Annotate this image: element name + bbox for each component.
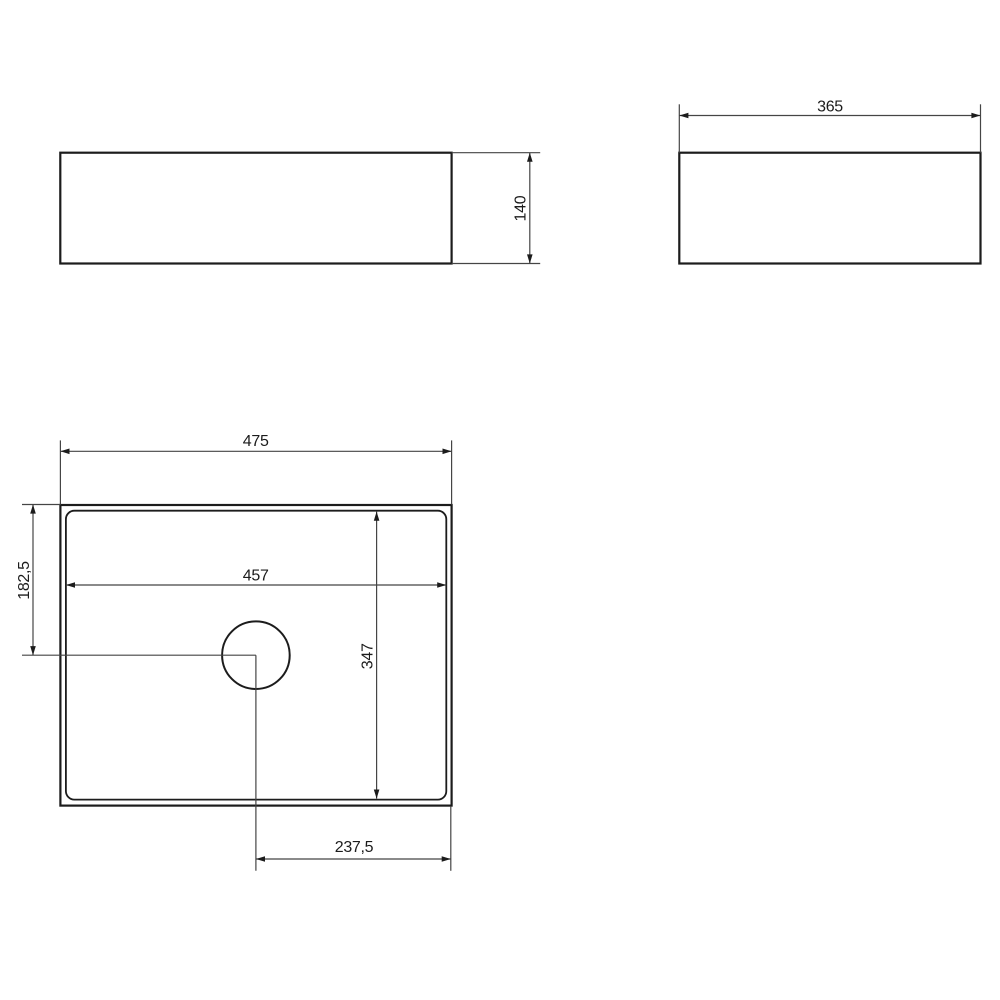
svg-text:140: 140 (512, 195, 529, 221)
svg-text:182,5: 182,5 (16, 561, 33, 600)
svg-text:475: 475 (243, 433, 269, 450)
svg-text:365: 365 (817, 98, 843, 115)
svg-text:457: 457 (243, 567, 269, 584)
svg-text:347: 347 (359, 643, 376, 669)
svg-text:237,5: 237,5 (335, 839, 374, 856)
